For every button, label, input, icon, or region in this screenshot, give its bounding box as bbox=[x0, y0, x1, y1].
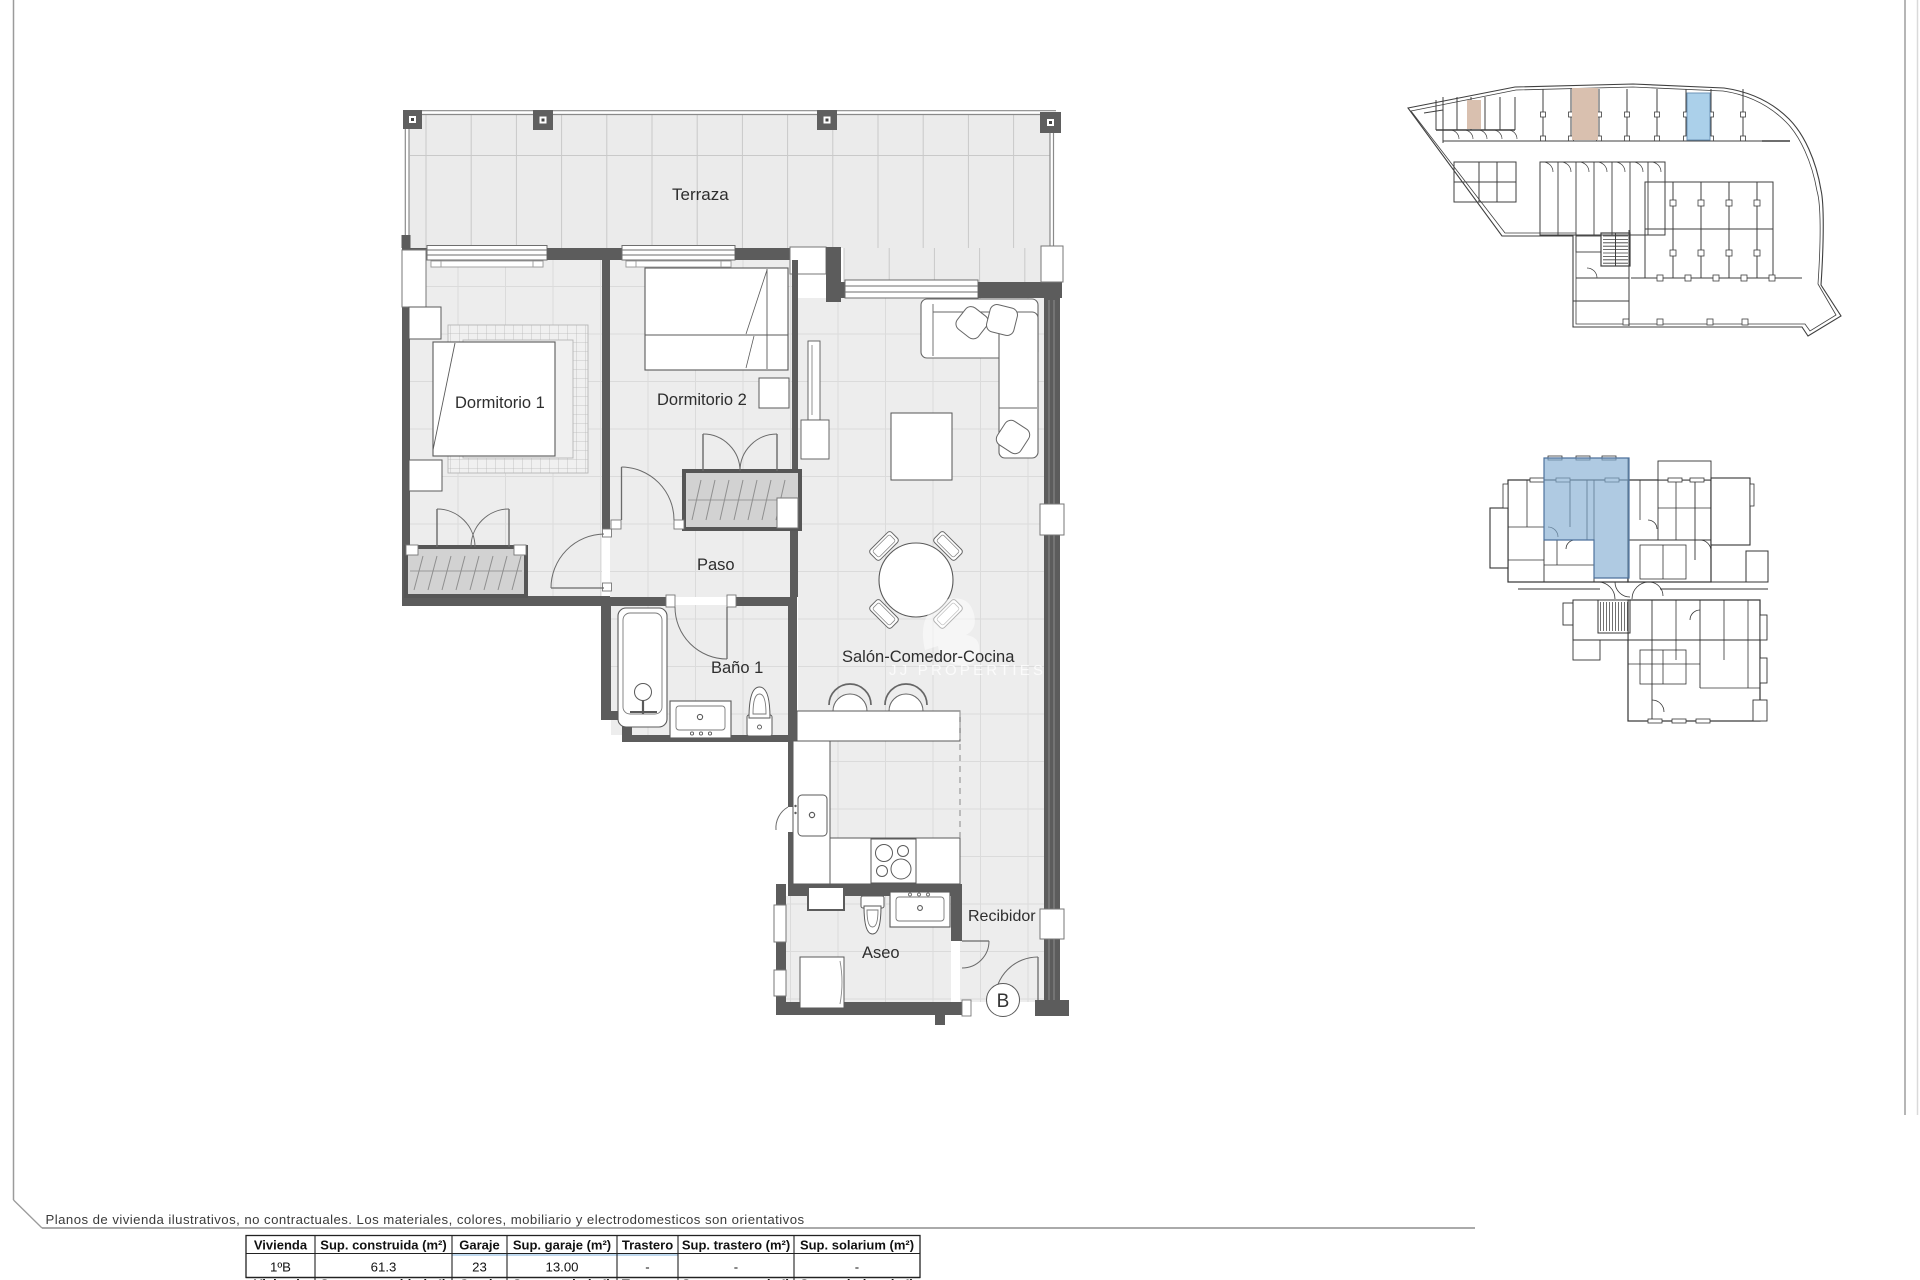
svg-text:Sup. solarium (m²): Sup. solarium (m²) bbox=[800, 1277, 914, 1280]
svg-text:Trastero: Trastero bbox=[622, 1277, 673, 1280]
svg-text:Paso: Paso bbox=[697, 556, 735, 574]
svg-text:Sup. construida (m²): Sup. construida (m²) bbox=[320, 1277, 446, 1280]
svg-text:B: B bbox=[997, 991, 1010, 1012]
svg-text:Salón-Comedor-Cocina: Salón-Comedor-Cocina bbox=[842, 648, 1015, 666]
svg-text:Garaje: Garaje bbox=[459, 1238, 499, 1253]
svg-text:-: - bbox=[734, 1260, 738, 1275]
svg-text:Terraza: Terraza bbox=[672, 185, 729, 204]
svg-text:1ºB: 1ºB bbox=[270, 1260, 291, 1275]
svg-text:Sup. garaje (m²): Sup. garaje (m²) bbox=[513, 1277, 611, 1280]
svg-text:61.3: 61.3 bbox=[371, 1260, 397, 1275]
svg-text:-: - bbox=[645, 1260, 649, 1275]
svg-text:Aseo: Aseo bbox=[862, 944, 900, 962]
svg-text:Recibidor: Recibidor bbox=[968, 908, 1036, 925]
svg-text:Baño 1: Baño 1 bbox=[711, 659, 763, 677]
svg-text:13.00: 13.00 bbox=[545, 1260, 578, 1275]
svg-text:Sup. solarium (m²): Sup. solarium (m²) bbox=[800, 1238, 914, 1253]
svg-text:Trastero: Trastero bbox=[622, 1238, 673, 1253]
svg-text:Sup. trastero (m²): Sup. trastero (m²) bbox=[682, 1277, 790, 1280]
svg-text:Dormitorio 1: Dormitorio 1 bbox=[455, 394, 545, 412]
svg-text:-: - bbox=[855, 1260, 859, 1275]
svg-text:Sup. trastero (m²): Sup. trastero (m²) bbox=[682, 1238, 790, 1253]
svg-text:23: 23 bbox=[472, 1260, 487, 1275]
svg-text:Sup. garaje (m²): Sup. garaje (m²) bbox=[513, 1238, 611, 1253]
svg-text:Dormitorio 2: Dormitorio 2 bbox=[657, 391, 747, 409]
svg-text:Sup. construida (m²): Sup. construida (m²) bbox=[320, 1238, 446, 1253]
svg-text:Vivienda: Vivienda bbox=[254, 1238, 308, 1253]
svg-text:Planos de vivienda ilustrativo: Planos de vivienda ilustrativos, no cont… bbox=[46, 1212, 805, 1227]
svg-text:Garaje: Garaje bbox=[459, 1277, 499, 1280]
svg-text:Vivienda: Vivienda bbox=[254, 1277, 308, 1280]
